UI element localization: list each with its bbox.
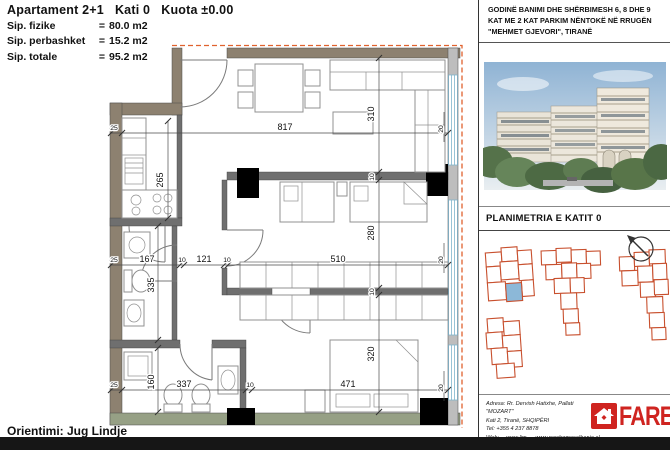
contact-block: Adresa: Rr. Dervish Hatixhe, Pallati "MO… xyxy=(479,394,670,437)
twin-beds xyxy=(280,182,427,222)
area-label: Sip. fizike xyxy=(7,20,95,32)
orientation-label: Orientimi: Jug Lindje xyxy=(7,424,127,438)
dimension-label: 320 xyxy=(366,346,376,361)
nightstand xyxy=(337,182,347,196)
dimension-label: 160 xyxy=(146,374,156,389)
address-line: Adresa: Rr. Dervish Hatixhe, Pallati "MO… xyxy=(486,400,591,417)
plan-section-header: PLANIMETRIA E KATIT 0 xyxy=(479,206,670,231)
equals-sign: = xyxy=(95,51,109,63)
window xyxy=(449,345,458,400)
dimension-label: 471 xyxy=(340,379,355,389)
document-page: Apartament 2+1 Kati 0 Kuota ±0.00 Sip. f… xyxy=(0,0,670,450)
fare-house-icon xyxy=(591,403,617,429)
double-bed xyxy=(305,340,418,412)
wardrobe-row-bedroom2 xyxy=(240,295,448,320)
site-cluster xyxy=(541,247,603,336)
site-cluster xyxy=(485,246,535,303)
address-line: Kati 2, Tiranë, SHQIPËRI xyxy=(486,417,591,425)
phone-line: Tel: +355 4 237 8878 xyxy=(486,425,591,433)
dimension-label: 20 xyxy=(438,384,445,392)
bathroom2-door xyxy=(180,344,212,380)
dimension-label: 20 xyxy=(438,125,445,133)
equals-sign: = xyxy=(95,35,109,47)
dimension-label: 335 xyxy=(146,277,156,292)
dimension-label: 10 xyxy=(369,288,376,296)
dimension-label: 10 xyxy=(223,257,231,264)
dimension-label: 10 xyxy=(246,382,254,389)
site-cluster xyxy=(485,317,523,379)
dimension-label: 25 xyxy=(110,382,118,389)
equals-sign: = xyxy=(95,20,109,32)
dimension-label: 25 xyxy=(110,257,118,264)
plan-header: Apartament 2+1 Kati 0 Kuota ±0.00 Sip. f… xyxy=(7,3,234,63)
render-building xyxy=(597,88,649,170)
dimension-label: 167 xyxy=(139,254,154,264)
title-block-panel: GODINË BANIMI DHE SHËRBIMESH 6, 8 DHE 9 … xyxy=(478,0,670,437)
project-title-line: "MEHMET GJEVORI", TIRANË xyxy=(488,27,670,38)
floor-plan-drawing: 817 25 265 310 10 280 10 320 25 167 10 1… xyxy=(0,0,478,450)
area-row: Sip. fizike = 80.0 m2 xyxy=(7,20,234,32)
dimension-label: 10 xyxy=(369,173,376,181)
company-logo: FARE xyxy=(591,395,670,437)
site-plan xyxy=(481,233,669,391)
dining-set xyxy=(238,64,320,112)
area-value: 95.2 m2 xyxy=(109,51,148,63)
plan-section-title: PLANIMETRIA E KATIT 0 xyxy=(479,207,670,224)
project-title-line: GODINË BANIMI DHE SHËRBIMESH 6, 8 DHE 9 xyxy=(488,5,670,16)
toilet-tank xyxy=(124,270,132,292)
site-cluster xyxy=(619,249,669,341)
company-address: Adresa: Rr. Dervish Hatixhe, Pallati "MO… xyxy=(479,395,591,437)
apartment-title: Apartament 2+1 Kati 0 Kuota ±0.00 xyxy=(7,3,234,17)
dimension-label: 20 xyxy=(438,256,445,264)
dimension-label: 265 xyxy=(155,172,165,187)
area-label: Sip. totale xyxy=(7,51,95,63)
area-label: Sip. perbashket xyxy=(7,35,95,47)
dimension-label: 337 xyxy=(176,379,191,389)
dimension-label: 310 xyxy=(366,106,376,121)
area-row: Sip. totale = 95.2 m2 xyxy=(7,51,234,63)
project-title-line: KAT ME 2 KAT PARKIM NËNTOKË NË RRUGËN xyxy=(488,16,670,27)
dimension-label: 510 xyxy=(330,254,345,264)
dimension-label: 121 xyxy=(196,254,211,264)
right-facade-windows xyxy=(449,75,458,400)
window xyxy=(449,75,458,165)
window xyxy=(449,200,458,335)
dimension-label: 280 xyxy=(366,225,376,240)
fare-logo-text: FARE xyxy=(619,403,670,430)
building-render-image xyxy=(483,50,667,202)
unit-highlight xyxy=(505,283,522,302)
area-value: 15.2 m2 xyxy=(109,35,148,47)
bottom-border-bar xyxy=(0,437,670,450)
area-value: 80.0 m2 xyxy=(109,20,148,32)
dimension-label: 25 xyxy=(110,125,118,132)
area-row: Sip. perbashket = 15.2 m2 xyxy=(7,35,234,47)
render-photo xyxy=(483,62,667,193)
nightstand xyxy=(305,390,325,412)
bidet-icon xyxy=(192,384,210,406)
project-title-block: GODINË BANIMI DHE SHËRBIMESH 6, 8 DHE 9 … xyxy=(479,0,670,43)
wardrobe-row-bedroom1 xyxy=(240,262,448,288)
dimension-label: 10 xyxy=(178,257,186,264)
bedroom1-door xyxy=(227,230,263,266)
render-building xyxy=(551,106,599,162)
dimension-label: 817 xyxy=(277,122,292,132)
entry-door xyxy=(180,60,227,107)
